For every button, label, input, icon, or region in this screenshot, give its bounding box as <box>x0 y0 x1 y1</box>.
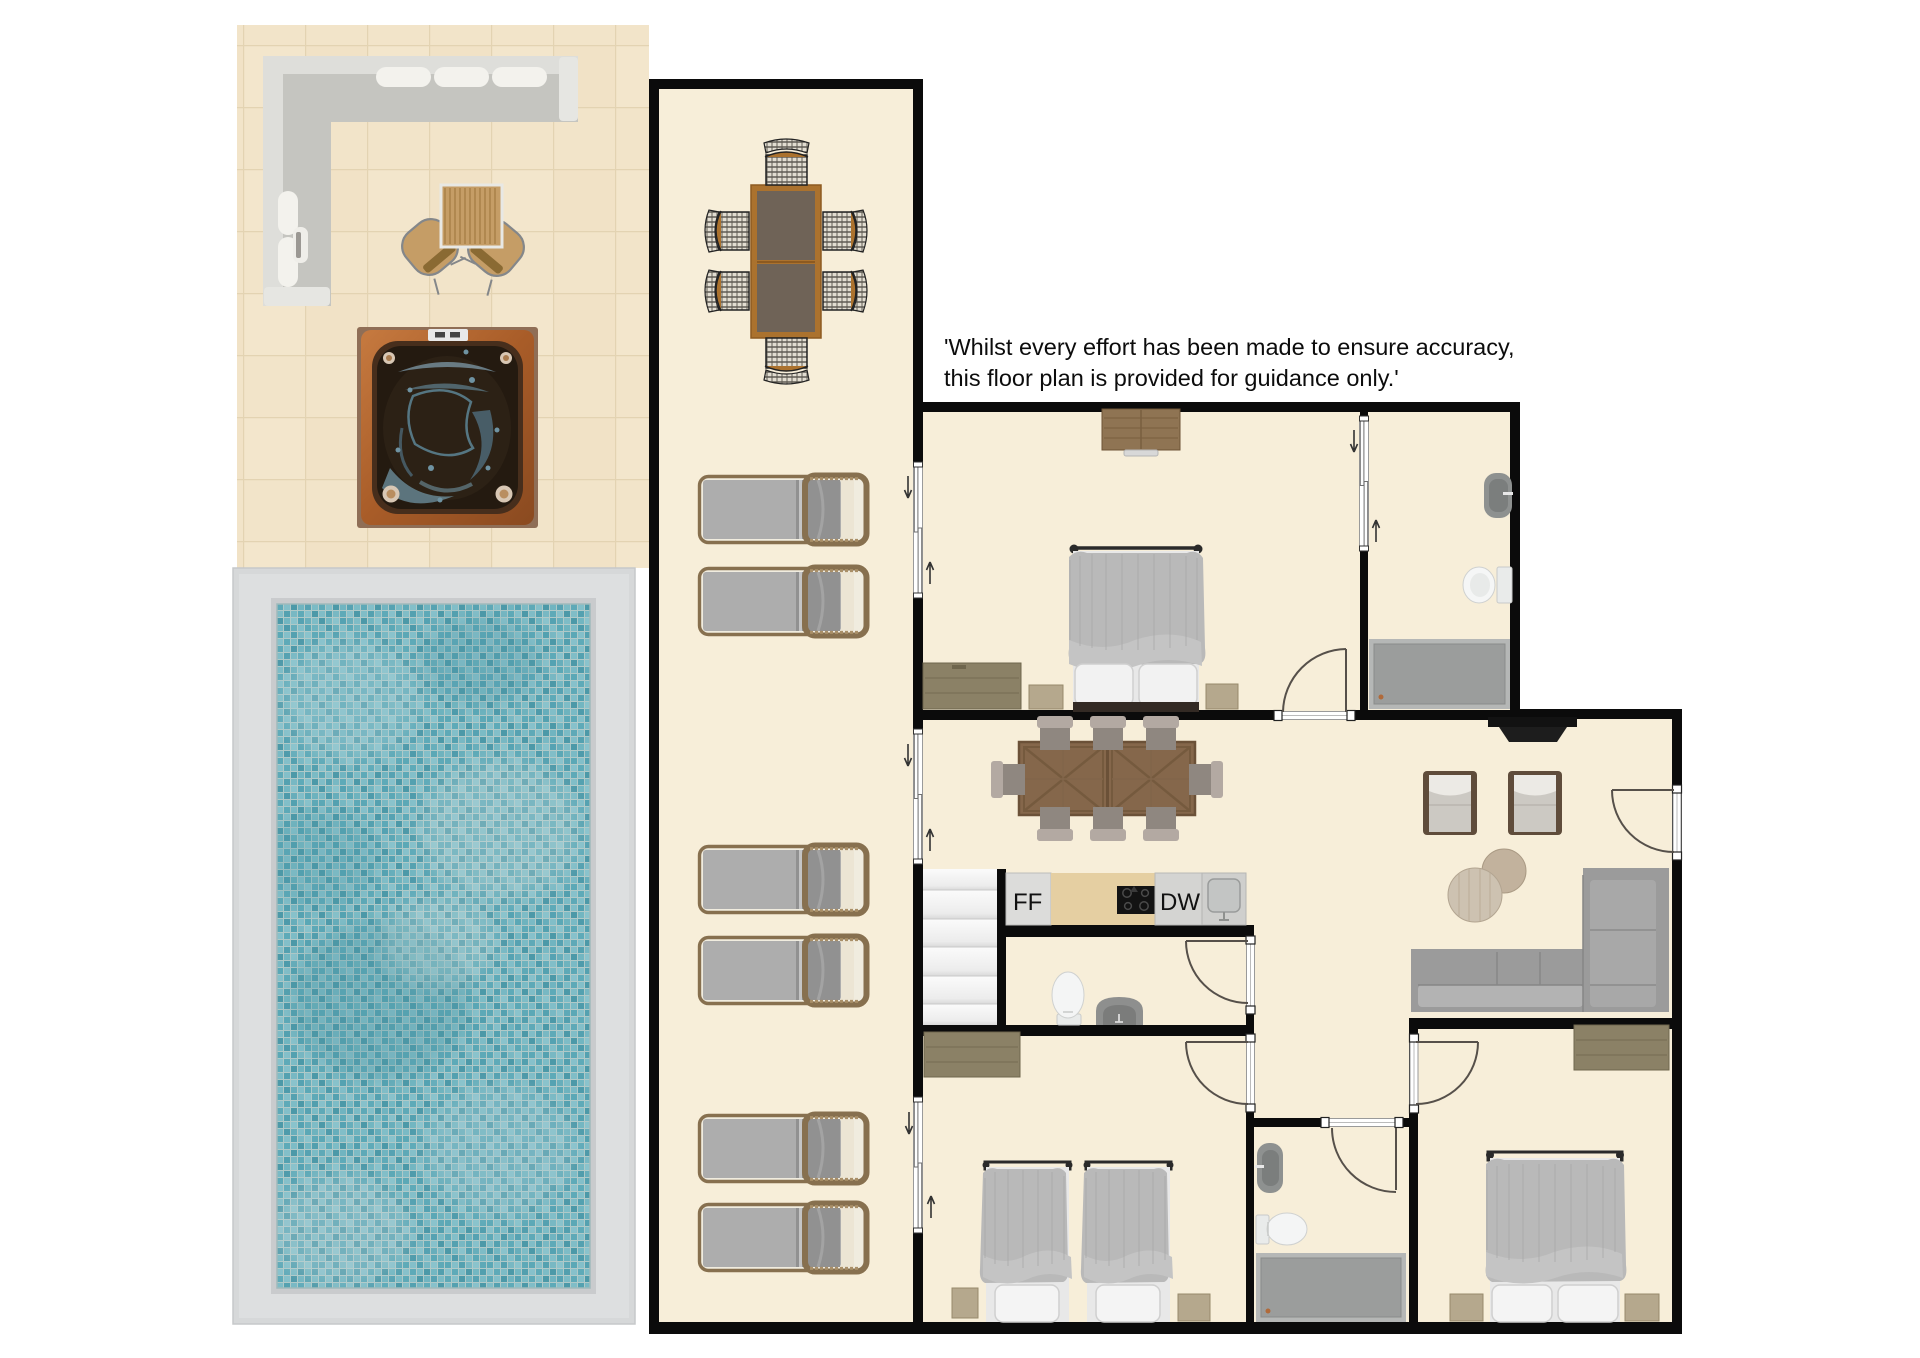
svg-text:this floor plan is provided fo: this floor plan is provided for guidance… <box>944 365 1399 391</box>
svg-text:'Whilst every effort has been: 'Whilst every effort has been made to en… <box>944 334 1515 360</box>
svg-text:DW: DW <box>1160 889 1200 916</box>
svg-text:FF: FF <box>1013 889 1042 916</box>
